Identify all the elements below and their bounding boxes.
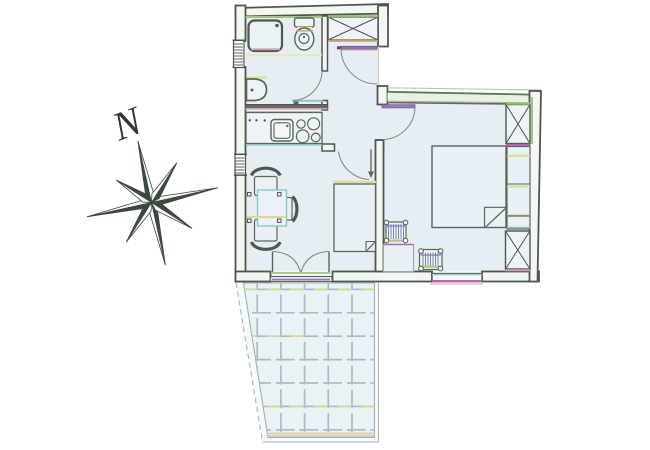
svg-text:N: N xyxy=(105,97,149,150)
